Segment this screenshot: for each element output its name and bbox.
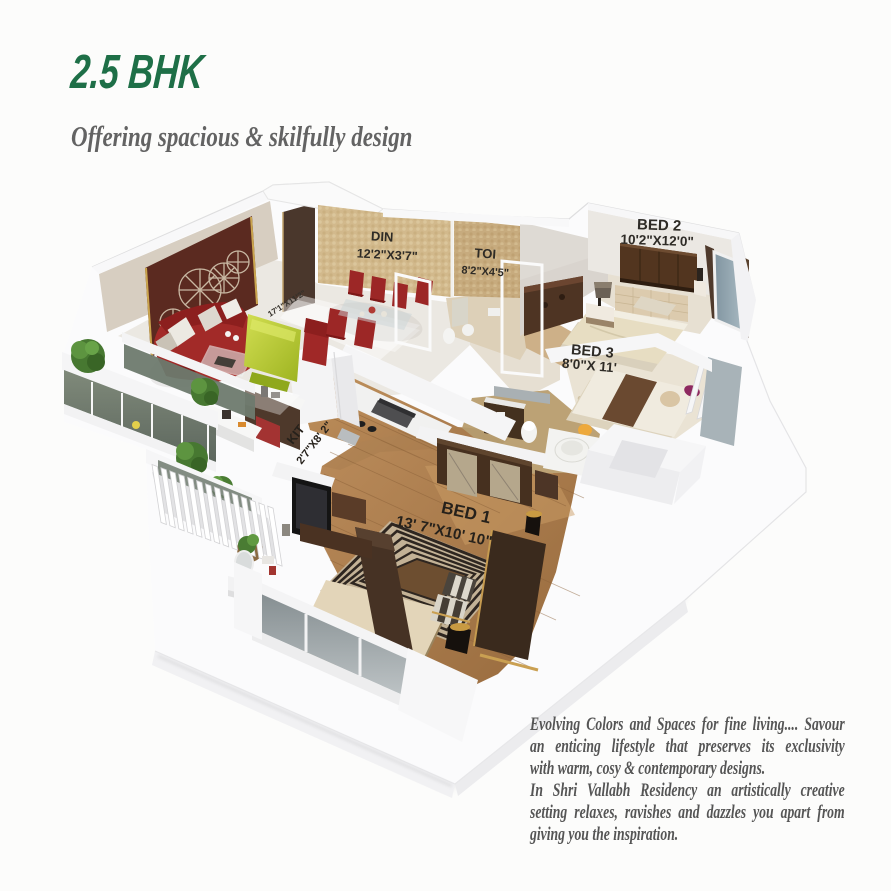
- svg-text:TOI: TOI: [474, 245, 496, 261]
- svg-text:10'2"X12'0": 10'2"X12'0": [620, 232, 694, 250]
- svg-text:DIN: DIN: [371, 228, 394, 244]
